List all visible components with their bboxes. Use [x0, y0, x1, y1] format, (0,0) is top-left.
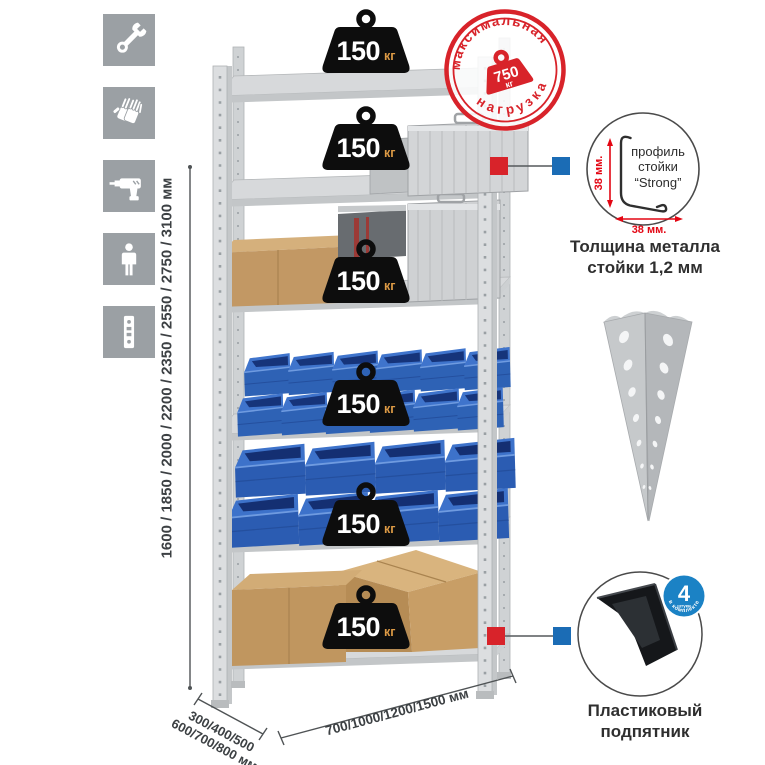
load-unit: кг — [384, 49, 395, 63]
upright-post-image — [603, 311, 692, 521]
profile-label-line2: стойки — [638, 159, 678, 174]
profile-caption: Толщина металла стойки 1,2 мм — [535, 236, 755, 278]
shelf5-load: 150 кг — [322, 507, 410, 541]
shelf-load-weights — [322, 12, 409, 649]
profile-label-line1: профиль — [631, 144, 685, 159]
shelf6-load: 150 кг — [322, 610, 410, 644]
drill-icon — [103, 160, 155, 212]
gloves-icon — [103, 87, 155, 139]
foot-caption: Пластиковый подпятник — [535, 700, 755, 742]
foot-callout-graphic: 4 штуки в комплекте — [578, 572, 707, 696]
shelf3-load: 150 кг — [322, 264, 410, 298]
profile-dim-horizontal: 38 мм. — [632, 224, 667, 236]
badge-count: 4 — [678, 581, 691, 606]
profile-label-line3: “Strong” — [635, 175, 682, 190]
count-badge: 4 штуки в комплекте — [662, 574, 707, 619]
person-icon — [103, 233, 155, 285]
profile-callout-graphic: 38 мм. 38 мм. профиль стойки “Strong” — [587, 113, 699, 236]
shelf1-load: 150 кг — [322, 34, 410, 68]
shelf2-load: 150 кг — [322, 131, 410, 165]
product-infographic: 38 мм. 38 мм. профиль стойки “Strong” — [0, 0, 765, 765]
shelf4-load: 150 кг — [322, 387, 410, 421]
upright-profile-icon — [103, 306, 155, 358]
height-dimension-label: 1600 / 1850 / 2000 / 2200 / 2350 / 2550 … — [159, 178, 176, 559]
wrench-icon — [103, 14, 155, 66]
load-value: 150 — [336, 34, 380, 68]
profile-dim-vertical: 38 мм. — [593, 156, 605, 191]
